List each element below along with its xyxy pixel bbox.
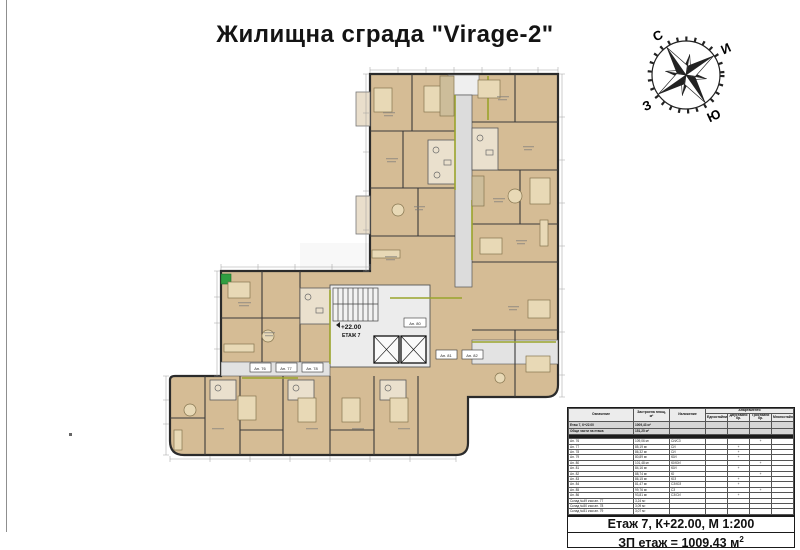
floor-area-label: ЗП етаж = 1009.43 м2: [568, 532, 794, 547]
unit-label: Ап. 81: [436, 350, 457, 359]
area-table: Означение Застроена площ, м² Изложение А…: [568, 408, 794, 515]
col-header-sub2: Двустайни бр.: [728, 413, 750, 421]
unit-label: Ап. 76: [250, 363, 271, 372]
col-header-sub3: Тристайни бр.: [750, 413, 772, 421]
floor-scale-label: Етаж 7, К+22.00, М 1:200: [568, 515, 794, 532]
svg-text:Ап. 82: Ап. 82: [466, 353, 478, 358]
area-table-body: Етаж 7, К+22.001009,43 м²Общи части на е…: [569, 422, 794, 515]
level-label: ЕТАЖ 7: [342, 333, 361, 339]
svg-text:Ап. 78: Ап. 78: [306, 366, 318, 371]
svg-text:Ап. 81: Ап. 81: [440, 353, 452, 358]
col-header-designation: Означение: [569, 409, 634, 422]
col-header-area: Застроена площ, м²: [634, 409, 670, 422]
col-header-sub1: Едностайни: [706, 413, 728, 421]
svg-text:Ап. 77: Ап. 77: [280, 366, 292, 371]
unit-label: Ап. 78: [302, 363, 323, 372]
corridor-vertical: [455, 95, 472, 287]
unit-label: Ап. 77: [276, 363, 297, 372]
col-header-sub4: Многостайни: [772, 413, 794, 421]
svg-text:Ап. 76: Ап. 76: [254, 366, 266, 371]
balcony: [356, 196, 370, 234]
balcony: [356, 92, 370, 126]
unit-label: Ап. 82: [462, 350, 483, 359]
svg-text:Ап. 80: Ап. 80: [409, 321, 421, 326]
table-row: Склад №51 към ап. 793,07 м²: [569, 509, 794, 514]
level-mark: +22.00: [341, 324, 361, 331]
area-table-panel: Означение Застроена площ, м² Изложение А…: [567, 407, 795, 548]
unit-label: Ап. 80: [404, 318, 426, 327]
col-header-exposure: Изложение: [670, 409, 706, 422]
